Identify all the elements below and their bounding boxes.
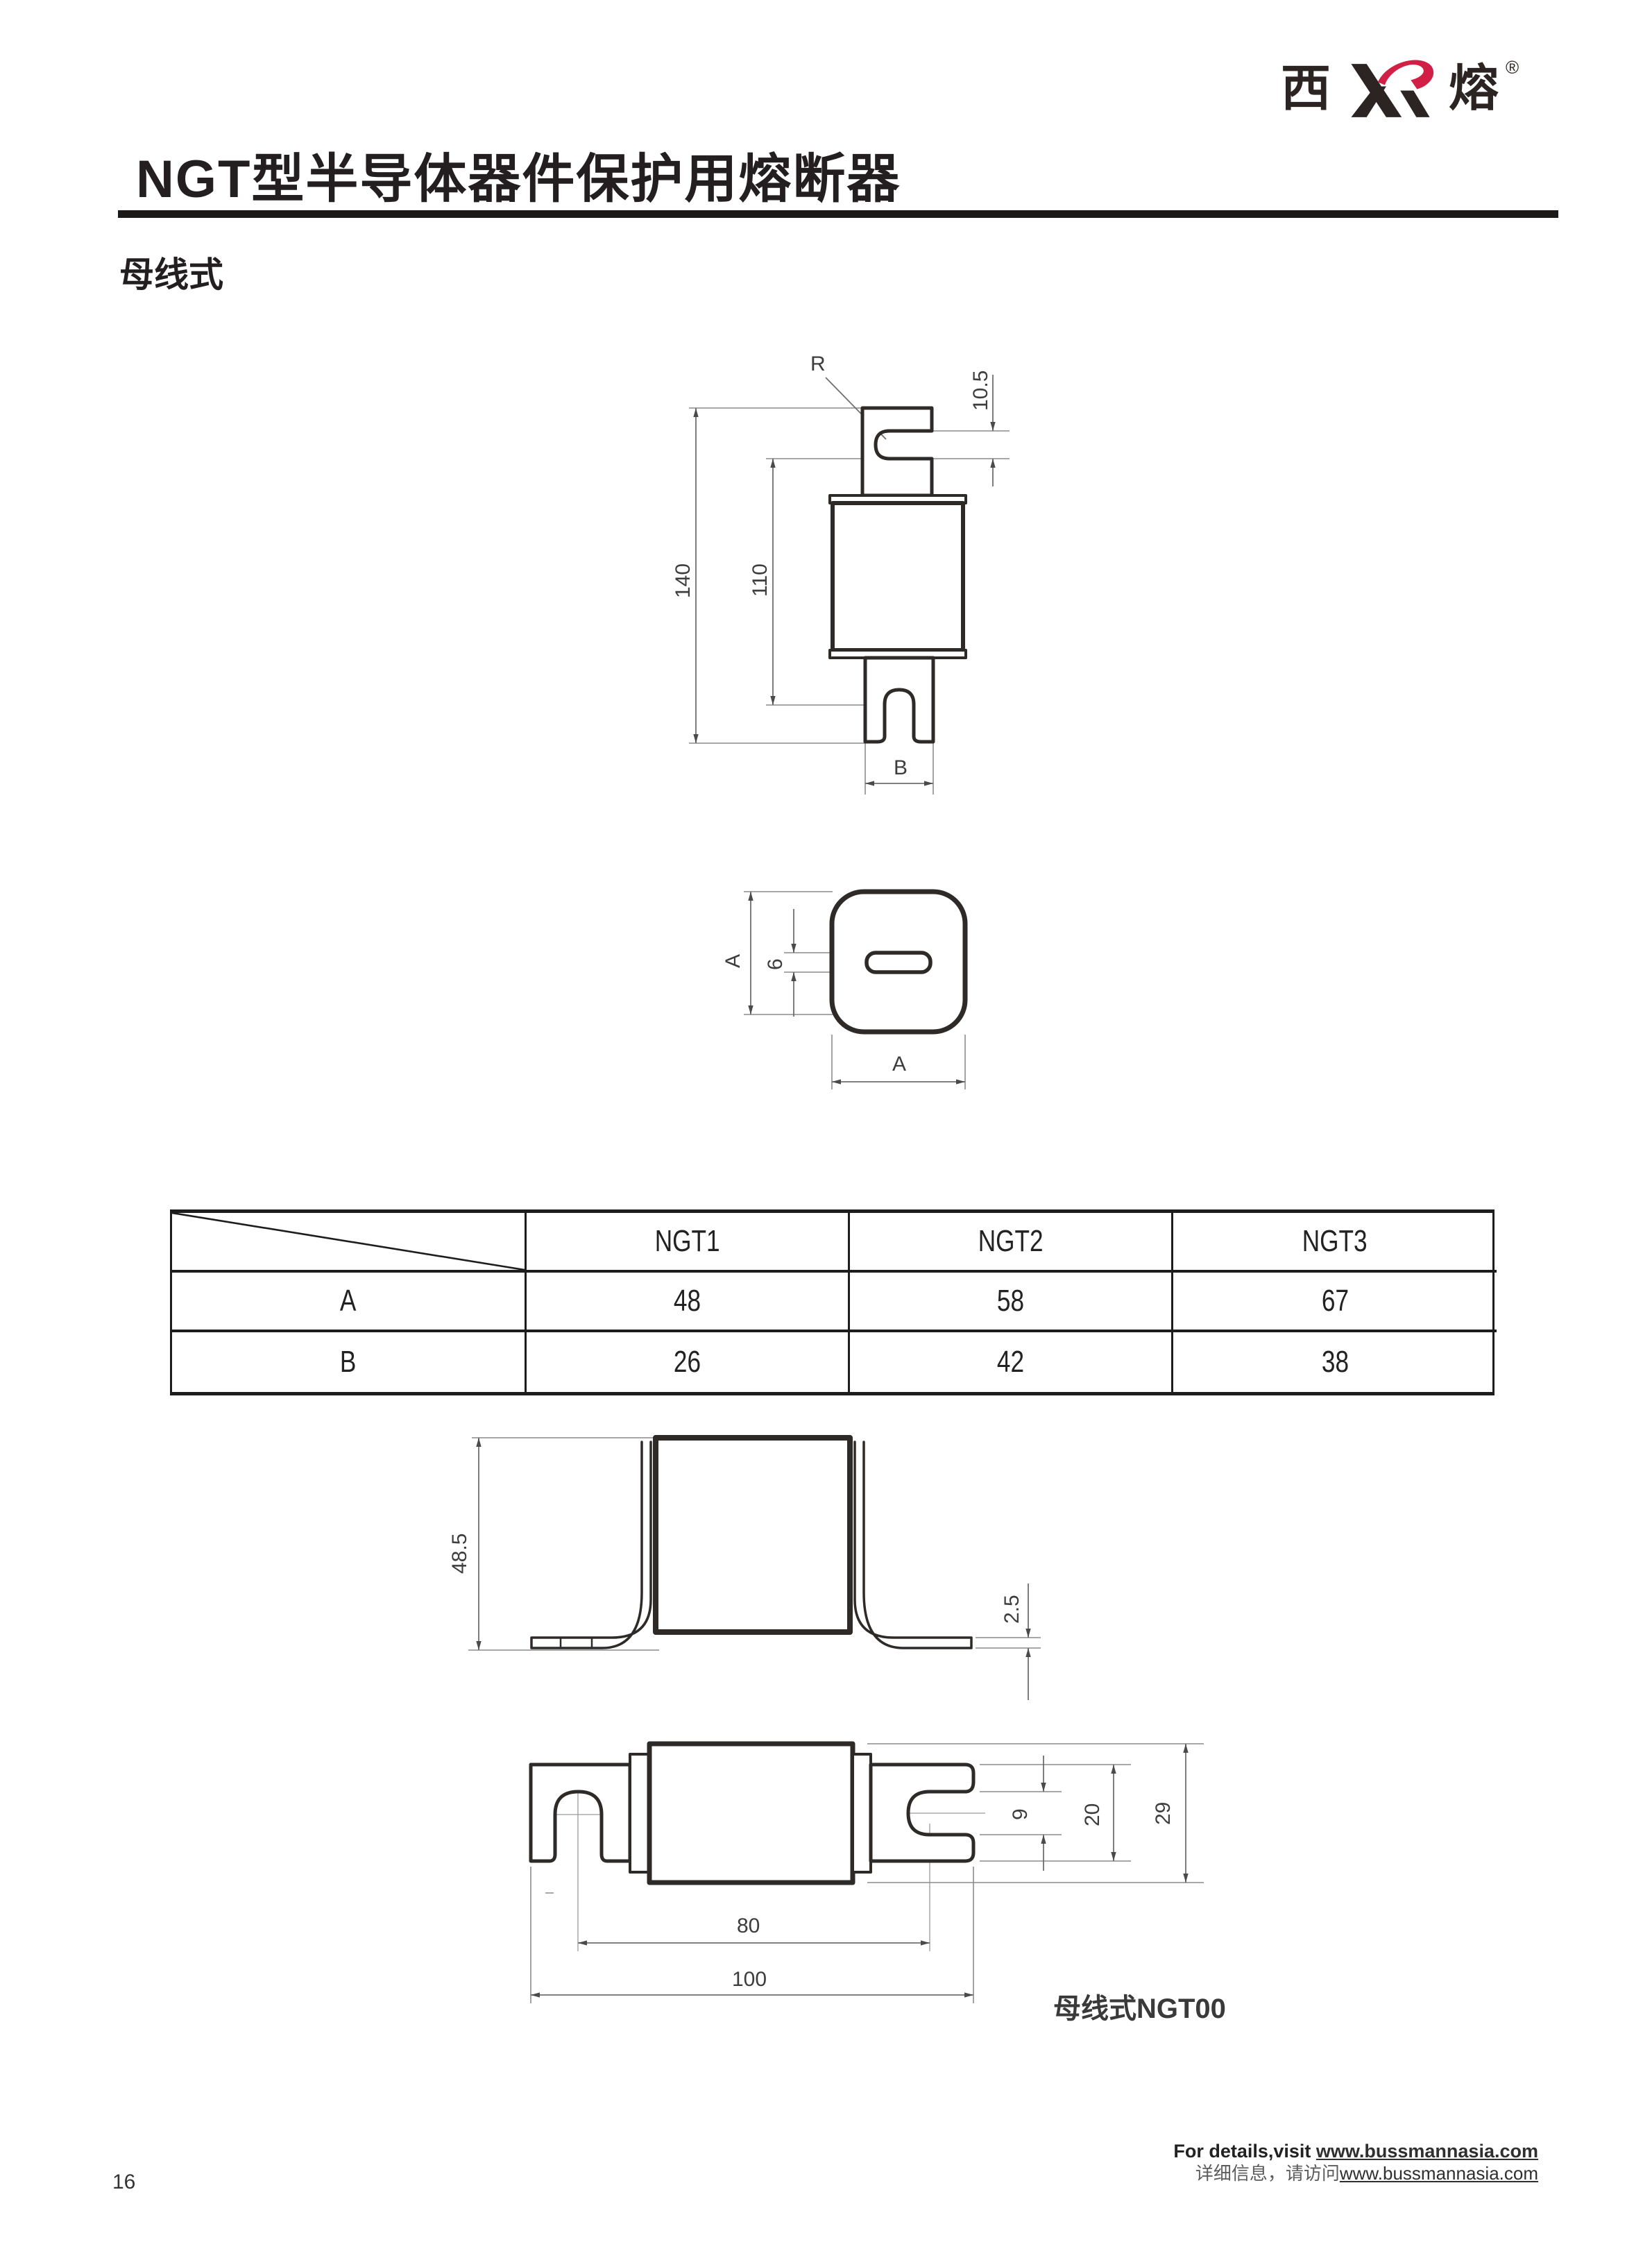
dim-label-a-left: A [722,954,744,968]
right-blade-bend [855,1442,971,1648]
fuse-body-front [656,1438,850,1632]
section-subtitle: 母线式 [119,247,223,297]
col-header-ngt3: NGT3 [1173,1213,1497,1273]
brand-logo: 西 熔 ® [1281,54,1519,124]
datasheet-page: 西 熔 ® NGT型半导体器件保护用熔断器 母线式 [0,0,1652,2242]
dim-label-b: B [894,756,908,779]
registered-mark: ® [1506,57,1519,78]
left-blade-bend [531,1442,651,1648]
table-cell-a-ngt2: 58 [850,1273,1173,1332]
col-header-ngt1: NGT1 [527,1213,850,1273]
footer-line-cn: 详细信息，请访问www.bussmannasia.com [1041,2162,1538,2184]
left-blade-ngt00 [531,1765,630,1861]
logo-xr-mark-icon [1338,56,1442,122]
dim-label-r: R [810,353,826,375]
dimension-table: NGT1 NGT2 NGT3 A 48 58 67 B 26 42 38 [170,1209,1495,1395]
top-blade-outline [862,408,932,495]
page-footer: For details,visit www.bussmannasia.com 详… [1041,2140,1538,2184]
table-cell-b-ngt2: 42 [850,1332,1173,1392]
dim-label-9: 9 [1009,1808,1032,1820]
footer-cn-text: 详细信息，请访问 [1195,2163,1340,2184]
dim-label-2-5: 2.5 [1000,1595,1023,1624]
dim-label-29: 29 [1152,1802,1175,1825]
blade-slot [867,953,930,972]
logo-char-xi: 西 [1281,64,1331,114]
row-label-a: A [172,1273,527,1332]
row-label-b: B [172,1332,527,1392]
table-cell-a-ngt3: 67 [1173,1273,1497,1332]
body-ngt00 [649,1744,853,1883]
dim-label-140: 140 [672,563,695,598]
table-cell-b-ngt1: 26 [527,1332,850,1392]
left-cap-ngt00 [630,1754,649,1872]
drawing-caption-ngt00: 母线式NGT00 [1053,1994,1226,2024]
footer-en-text: For details,visit [1173,2141,1316,2162]
dim-label-48-5: 48.5 [448,1534,471,1574]
dim-label-110: 110 [749,563,772,597]
dim-label-6: 6 [764,958,787,970]
dim-label-a-bottom: A [892,1053,906,1076]
dim-label-100: 100 [732,1968,767,1991]
fuse-ngt00-view-drawing: 9 20 29 80 100 母线式NGT00 [486,1714,1263,2026]
footer-cn-link[interactable]: www.bussmannasia.com [1340,2163,1538,2184]
page-number: 16 [112,2171,135,2194]
footer-line-en: For details,visit www.bussmannasia.com [1041,2140,1538,2162]
logo-char-rong: 熔 [1449,64,1499,114]
title-divider [118,210,1558,218]
table-cell-a-ngt1: 48 [527,1273,850,1332]
table-cell-b-ngt3: 38 [1173,1332,1497,1392]
right-cap-ngt00 [853,1754,871,1872]
fuse-body [833,503,963,650]
dim-label-20: 20 [1081,1803,1104,1826]
col-header-ngt2: NGT2 [850,1213,1173,1273]
diagonal-line [172,1213,525,1270]
left-foot-seams [561,1638,592,1648]
fuse-top-view-drawing: A 6 A [708,878,985,1121]
fuse-side-view-drawing: R 10.5 140 110 B [680,333,1013,805]
fuse-front-view-drawing: 48.5 2.5 [430,1423,1124,1714]
dim-label-10-5: 10.5 [969,371,992,411]
bottom-blade-outline [865,658,933,742]
footer-en-link[interactable]: www.bussmannasia.com [1316,2141,1538,2162]
dim-label-80: 80 [737,1914,760,1937]
page-title: NGT型半导体器件保护用熔断器 [136,136,901,212]
table-corner-cell [172,1213,527,1273]
